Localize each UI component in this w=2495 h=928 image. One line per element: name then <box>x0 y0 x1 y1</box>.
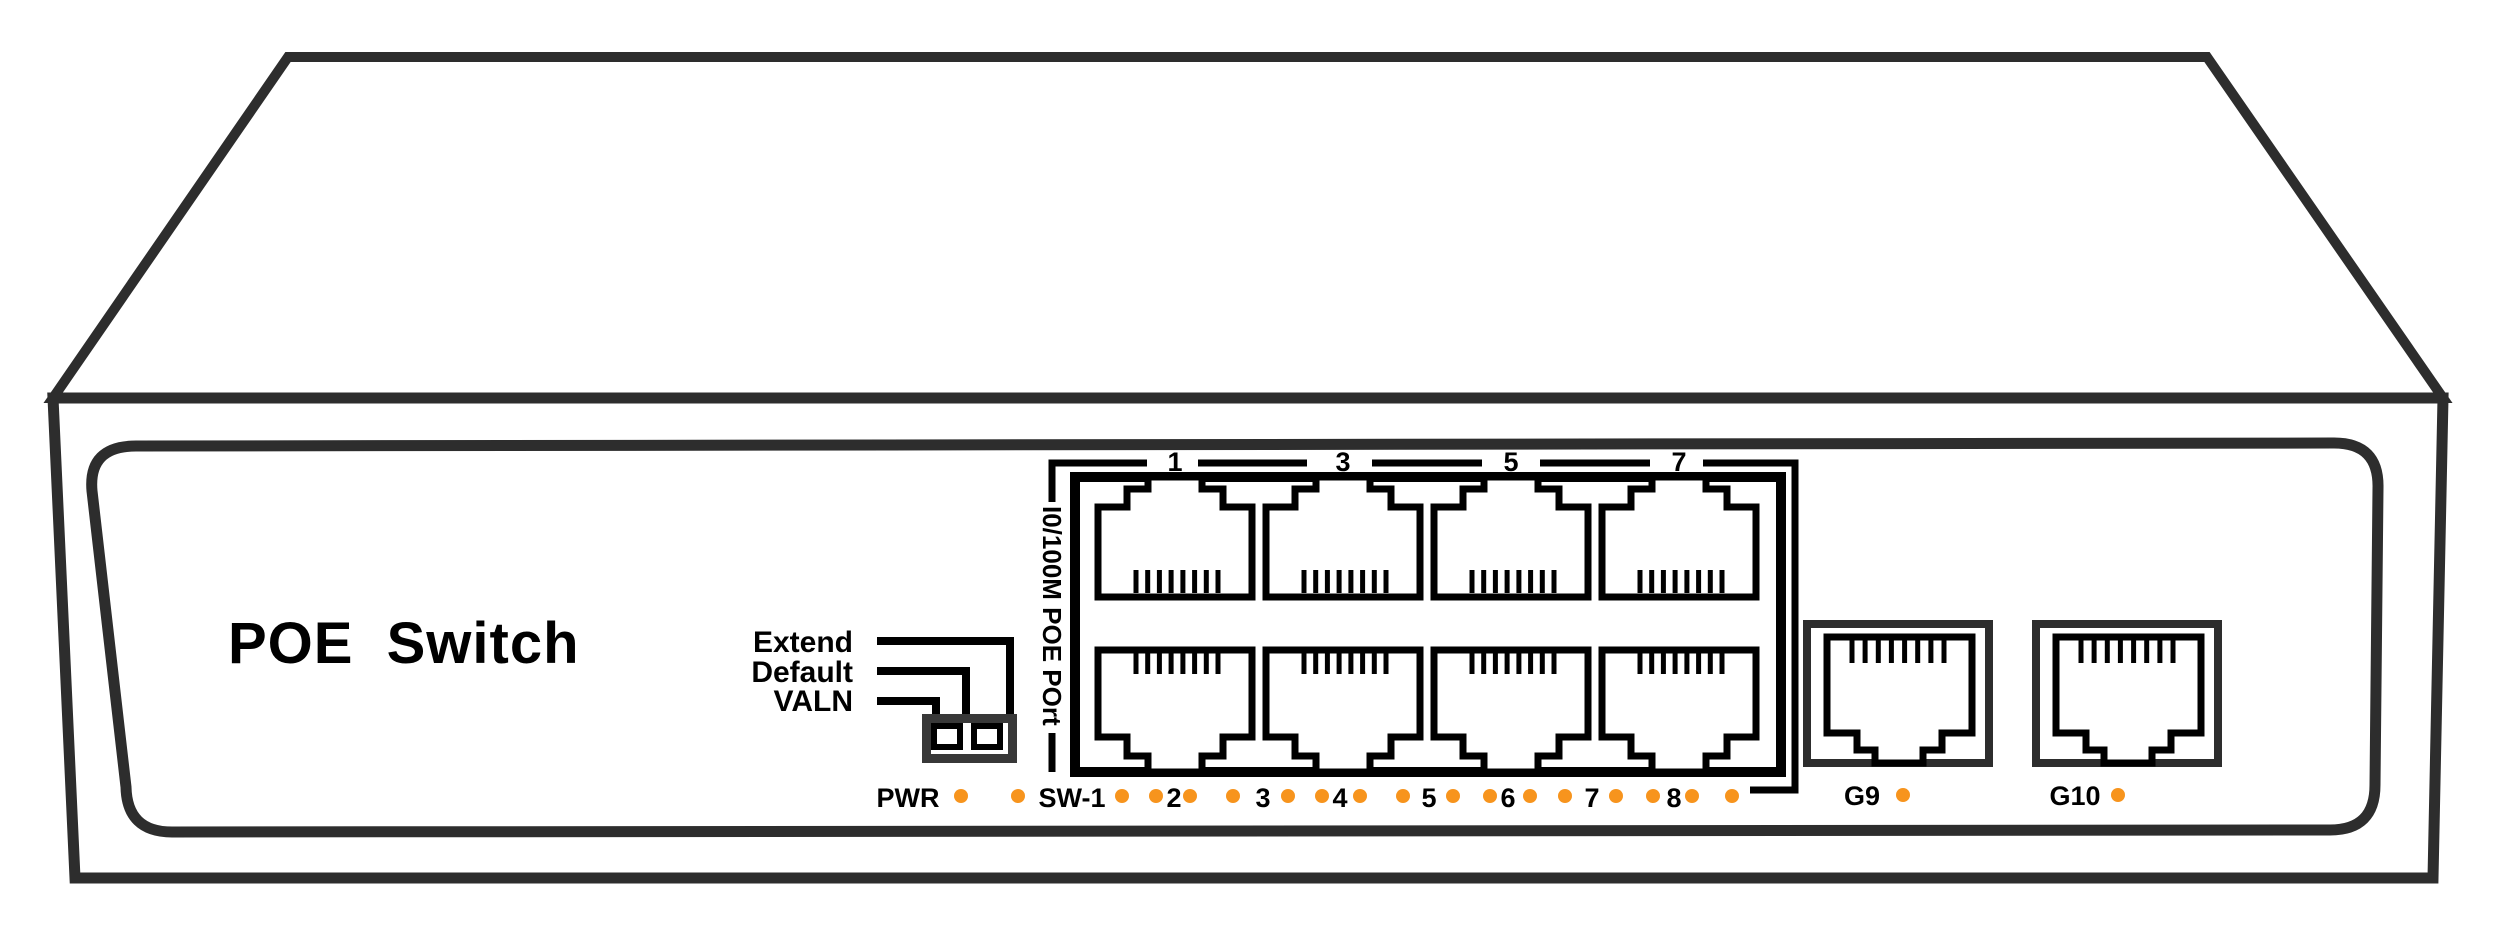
led-dot <box>1685 789 1699 803</box>
poe-group-label: I0/100M POE POrt <box>1037 506 1067 726</box>
led-dot <box>1315 789 1329 803</box>
led-dot <box>1646 789 1660 803</box>
port-number-5: 5 <box>1503 447 1518 477</box>
led-dot <box>1353 789 1367 803</box>
uplink-label-g10: G10 <box>2049 781 2100 811</box>
led-label-sw1: SW-1 <box>1039 783 1106 813</box>
led-dot <box>1609 789 1623 803</box>
port-number-7: 7 <box>1671 447 1686 477</box>
led-label-2: 2 <box>1166 783 1181 813</box>
port-number-1: 1 <box>1167 447 1182 477</box>
led-label-4: 4 <box>1332 783 1347 813</box>
config-label-extend: Extend <box>753 626 853 659</box>
led-dot <box>954 789 968 803</box>
uplink-led-g10 <box>2111 788 2125 802</box>
chassis-top-face <box>53 57 2443 398</box>
led-dot <box>1725 789 1739 803</box>
uplink-label-g9: G9 <box>1844 781 1880 811</box>
led-dot <box>1483 789 1497 803</box>
dip-switch-toggle-1 <box>934 726 960 747</box>
led-label-3: 3 <box>1255 783 1270 813</box>
led-dot <box>1149 789 1163 803</box>
port-number-3: 3 <box>1335 447 1350 477</box>
led-label-5: 5 <box>1421 783 1436 813</box>
dip-switch-toggle-2 <box>974 726 1000 747</box>
led-dot <box>1115 789 1129 803</box>
led-label-7: 7 <box>1584 783 1599 813</box>
led-dot <box>1011 789 1025 803</box>
led-dot <box>1396 789 1410 803</box>
device-title: POE Switch <box>228 611 580 676</box>
led-dot <box>1523 789 1537 803</box>
led-label-pwr: PWR <box>877 783 940 813</box>
config-label-valn: VALN <box>774 685 853 718</box>
led-dot <box>1281 789 1295 803</box>
led-label-6: 6 <box>1500 783 1515 813</box>
uplink-led-g9 <box>1896 788 1910 802</box>
poe-switch-diagram: POE Switch Extend Default VALN 1 3 5 7 I… <box>0 0 2495 928</box>
led-label-8: 8 <box>1666 783 1681 813</box>
led-dot <box>1558 789 1572 803</box>
led-dot <box>1226 789 1240 803</box>
led-dot <box>1183 789 1197 803</box>
led-dot <box>1446 789 1460 803</box>
